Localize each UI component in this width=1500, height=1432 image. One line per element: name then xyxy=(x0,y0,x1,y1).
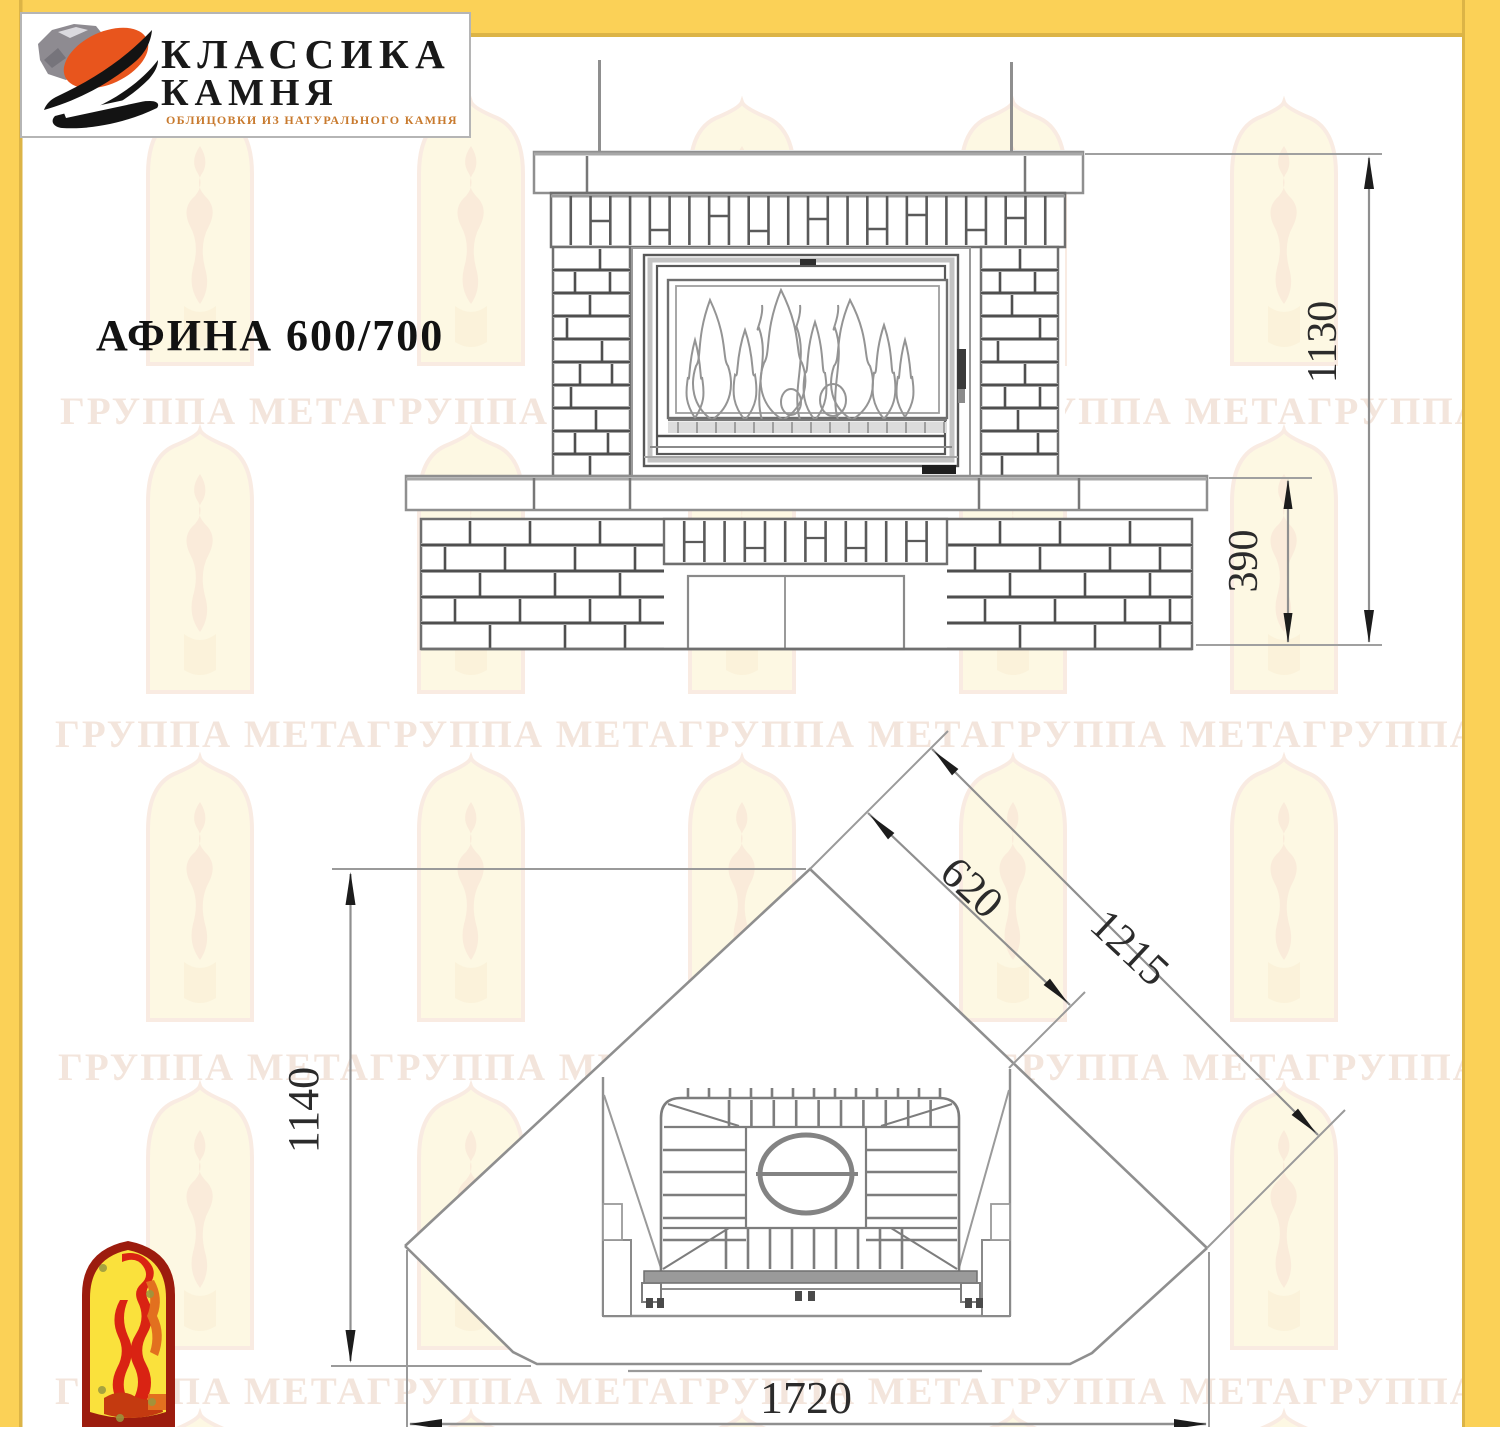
svg-text:1140: 1140 xyxy=(279,1067,328,1153)
svg-text:ГРУППА МЕТАГРУППА МЕТАГРУППА М: ГРУППА МЕТАГРУППА МЕТАГРУППА МЕТАГРУППА … xyxy=(55,713,1480,756)
svg-text:КАМНЯ: КАМНЯ xyxy=(161,72,339,114)
svg-text:ОБЛИЦОВКИ ИЗ НАТУРАЛЬНОГО КАМН: ОБЛИЦОВКИ ИЗ НАТУРАЛЬНОГО КАМНЯ xyxy=(166,113,458,127)
svg-text:390: 390 xyxy=(1221,530,1267,593)
svg-text:1720: 1720 xyxy=(760,1372,852,1423)
svg-text:1130: 1130 xyxy=(1300,301,1346,383)
svg-text:КЛАССИКА: КЛАССИКА xyxy=(161,31,451,77)
svg-text:АФИНА 600/700: АФИНА 600/700 xyxy=(96,311,444,360)
